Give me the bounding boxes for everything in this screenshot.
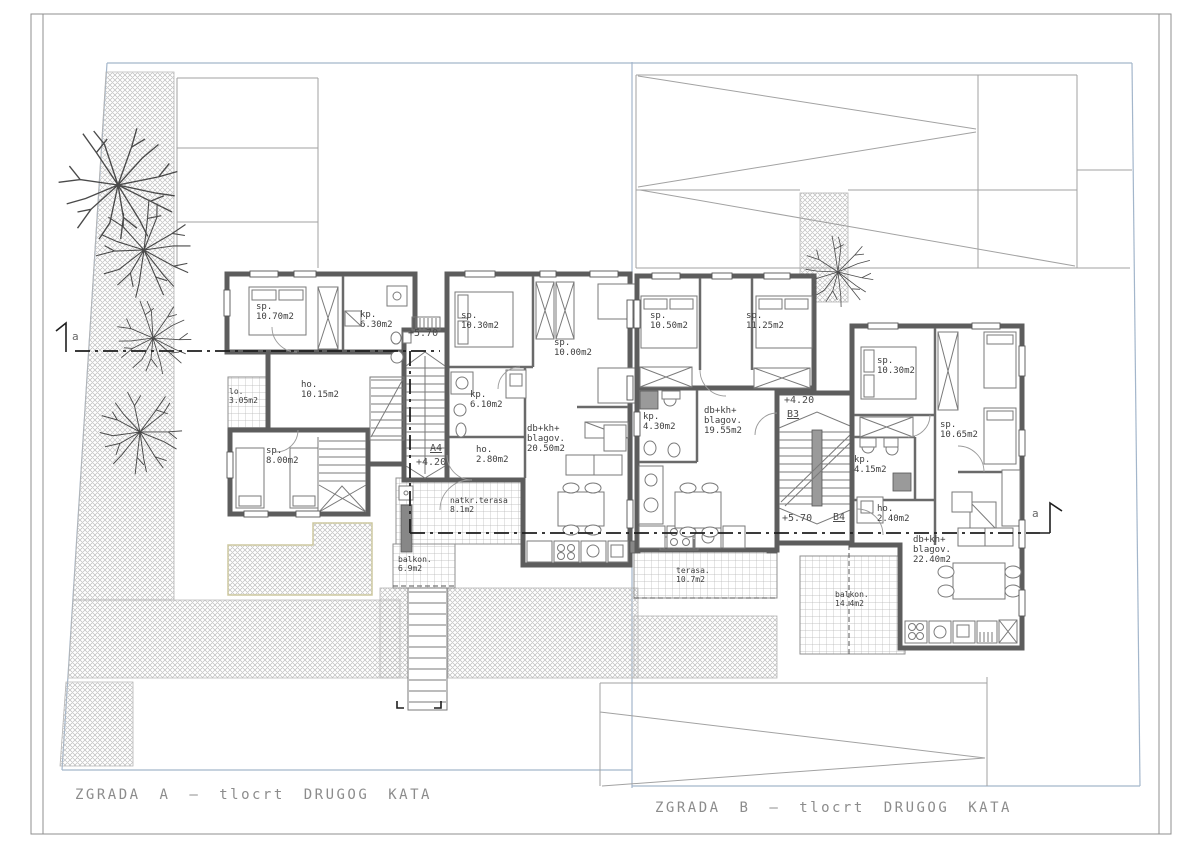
room-name: blagov. <box>527 434 565 444</box>
room-area: 11.25m2 <box>746 321 784 331</box>
stair-id-b3: B3 <box>787 409 799 420</box>
room-name: balkon. <box>835 590 869 599</box>
roof-terrace-below-a1 <box>228 523 372 595</box>
room-area: 10.15m2 <box>301 390 339 400</box>
room-area: 10.70m2 <box>256 312 294 322</box>
room-name: sp. <box>266 446 299 456</box>
room-area: 10.65m2 <box>940 430 978 440</box>
room-name: kp. <box>470 390 503 400</box>
room-name: natkr.terasa <box>450 496 508 505</box>
room-area: 2.40m2 <box>877 514 910 524</box>
room-label-b2-ho: ho. 2.40m2 <box>877 504 910 524</box>
room-area: 4.15m2 <box>854 465 887 475</box>
room-label-b2-sp1: sp. 10.30m2 <box>877 356 915 376</box>
room-name: kp. <box>360 310 393 320</box>
room-area: 3.05m2 <box>229 396 258 405</box>
section-marker-right-label: a <box>1032 507 1039 520</box>
room-label-a1-lo: lo. 3.05m2 <box>229 387 258 405</box>
road-marking-top-right <box>636 75 1132 268</box>
room-area: 10.7m2 <box>676 575 710 584</box>
room-area: 6.9m2 <box>398 564 432 573</box>
room-name: kp. <box>854 455 887 465</box>
room-name: terasa. <box>676 566 710 575</box>
stair-id-a4: A4 <box>430 443 442 454</box>
room-name: db+kh+ <box>913 535 951 545</box>
room-name: kp. <box>643 412 676 422</box>
room-label-a2-kp: kp. 6.10m2 <box>470 390 503 410</box>
room-name: sp. <box>461 311 499 321</box>
room-name: lo. <box>229 387 258 396</box>
room-name: balkon. <box>398 555 432 564</box>
room-name: db+kh+ <box>527 424 565 434</box>
room-area: 10.30m2 <box>461 321 499 331</box>
floor-plan-drawing <box>0 0 1200 848</box>
room-name: ho. <box>476 445 509 455</box>
room-area: 10.00m2 <box>554 348 592 358</box>
section-marker-right-flag <box>1040 503 1062 533</box>
room-name: blagov. <box>913 545 951 555</box>
level-label-b4: +5.70 <box>782 513 812 524</box>
title-building-a: ZGRADA A — tlocrt DRUGOG KATA <box>75 787 432 803</box>
room-label-b1-sp2: sp. 11.25m2 <box>746 311 784 331</box>
room-label-a2-sp1: sp. 10.30m2 <box>461 311 499 331</box>
room-area: 2.80m2 <box>476 455 509 465</box>
room-area: 10.30m2 <box>877 366 915 376</box>
room-label-b1-living: db+kh+ blagov. 19.55m2 <box>704 406 742 436</box>
room-label-b1-sp1: sp. 10.50m2 <box>650 311 688 331</box>
room-label-a2-living: db+kh+ blagov. 20.50m2 <box>527 424 565 454</box>
room-name: ho. <box>877 504 910 514</box>
room-label-a1-sp1: sp. 10.70m2 <box>256 302 294 322</box>
room-label-b2-balcony: balkon. 14.4m2 <box>835 590 869 608</box>
room-area: 6.10m2 <box>470 400 503 410</box>
room-area: 19.55m2 <box>704 426 742 436</box>
room-label-b1-kp: kp. 4.30m2 <box>643 412 676 432</box>
room-label-a1-ho: ho. 10.15m2 <box>301 380 339 400</box>
room-name: sp. <box>554 338 592 348</box>
floor-plan-sheet: sp. 10.70m2 kp. 6.30m2 lo. 3.05m2 ho. 10… <box>0 0 1200 848</box>
stair-id-b4: B4 <box>833 512 845 523</box>
room-name: blagov. <box>704 416 742 426</box>
room-name: sp. <box>877 356 915 366</box>
room-label-a2-ho: ho. 2.80m2 <box>476 445 509 465</box>
level-label-b3: +4.20 <box>784 395 814 406</box>
room-area: 6.30m2 <box>360 320 393 330</box>
room-label-a2-sp2: sp. 10.00m2 <box>554 338 592 358</box>
room-label-a2-terrace: natkr.terasa 8.1m2 <box>450 496 508 514</box>
section-marker-left-flag <box>56 323 66 352</box>
room-label-b1-terrace: terasa. 10.7m2 <box>676 566 710 584</box>
section-marker-left-label: a <box>72 330 79 343</box>
room-area: 10.50m2 <box>650 321 688 331</box>
level-label-a-lower: +4.20 <box>416 457 446 468</box>
room-name: sp. <box>650 311 688 321</box>
room-area: 20.50m2 <box>527 444 565 454</box>
room-name: ho. <box>301 380 339 390</box>
building-b <box>630 273 1025 654</box>
room-name: db+kh+ <box>704 406 742 416</box>
room-label-a2-balcony: balkon. 6.9m2 <box>398 555 432 573</box>
parking-stalls-top-left <box>177 78 318 268</box>
room-label-a1-sp2: sp. 8.00m2 <box>266 446 299 466</box>
room-label-b2-kp: kp. 4.15m2 <box>854 455 887 475</box>
room-area: 4.30m2 <box>643 422 676 432</box>
room-name: sp. <box>940 420 978 430</box>
room-area: 14.4m2 <box>835 599 869 608</box>
room-label-b2-living: db+kh+ blagov. 22.40m2 <box>913 535 951 565</box>
room-name: sp. <box>256 302 294 312</box>
level-label-a-upper: +5.70 <box>408 328 438 339</box>
room-area: 8.00m2 <box>266 456 299 466</box>
room-label-b2-sp2: sp. 10.65m2 <box>940 420 978 440</box>
room-name: sp. <box>746 311 784 321</box>
road-marking-bottom-right <box>600 677 987 786</box>
room-area: 8.1m2 <box>450 505 508 514</box>
room-label-a1-kp: kp. 6.30m2 <box>360 310 393 330</box>
title-building-b: ZGRADA B — tlocrt DRUGOG KATA <box>655 800 1012 816</box>
room-area: 22.40m2 <box>913 555 951 565</box>
